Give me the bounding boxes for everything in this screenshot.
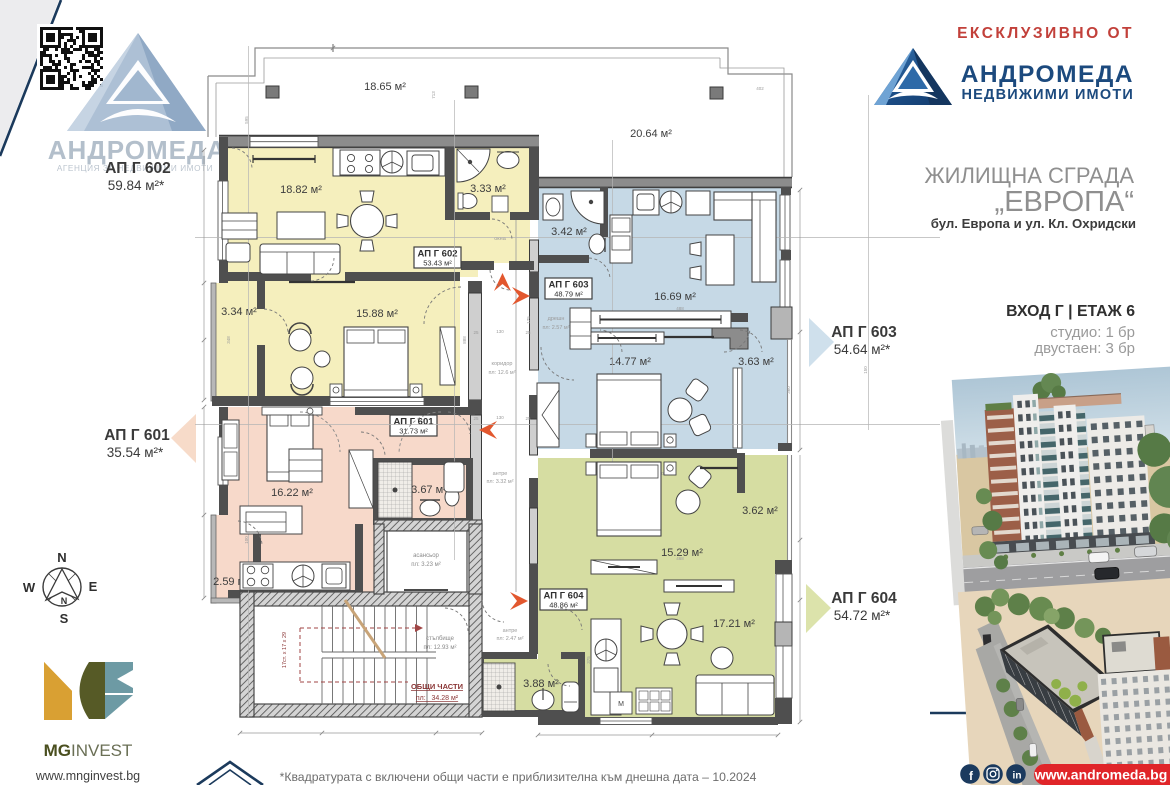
svg-text:3.63 м²: 3.63 м² xyxy=(738,356,774,368)
svg-text:*Квадратурата с включени общи: *Квадратурата с включени общи части е пр… xyxy=(280,770,757,784)
svg-text:пл: 2.57 м²: пл: 2.57 м² xyxy=(542,325,569,331)
svg-text:ВХОД Г | ЕТАЖ 6: ВХОД Г | ЕТАЖ 6 xyxy=(1006,303,1135,320)
svg-text:130: 130 xyxy=(496,415,504,420)
svg-text:дрешн: дрешн xyxy=(548,316,565,322)
svg-text:175: 175 xyxy=(526,316,531,324)
svg-text:130: 130 xyxy=(496,329,504,334)
svg-text:713: 713 xyxy=(431,91,436,99)
svg-text:54.72 м²*: 54.72 м²* xyxy=(834,608,891,623)
svg-text:18.65 м²: 18.65 м² xyxy=(364,81,406,93)
svg-text:25: 25 xyxy=(473,330,479,335)
svg-text:ЕКСКЛУЗИВНО ОТ: ЕКСКЛУЗИВНО ОТ xyxy=(957,25,1134,42)
svg-text:„ЕВРОПА“: „ЕВРОПА“ xyxy=(995,186,1134,218)
svg-text:100: 100 xyxy=(244,536,249,544)
svg-text:ЖИЛИЩНА СГРАДА: ЖИЛИЩНА СГРАДА xyxy=(924,163,1134,188)
svg-text:48.79 м²: 48.79 м² xyxy=(554,290,583,299)
svg-text:16.69 м²: 16.69 м² xyxy=(654,291,696,303)
svg-text:студио: 1 бр: студио: 1 бр xyxy=(1050,324,1135,341)
svg-text:АП Г 601: АП Г 601 xyxy=(104,427,170,444)
svg-text:бул. Европа и ул. Кл. Охридски: бул. Европа и ул. Кл. Охридски xyxy=(931,216,1136,231)
svg-text:пл: 3.23 м²: пл: 3.23 м² xyxy=(411,562,441,568)
svg-text:54.64 м²*: 54.64 м²* xyxy=(834,342,891,357)
svg-text:14.77 м²: 14.77 м² xyxy=(609,356,651,368)
svg-text:150: 150 xyxy=(863,366,868,374)
svg-text:3.67 м²: 3.67 м² xyxy=(411,484,447,496)
svg-text:3.88 м²: 3.88 м² xyxy=(523,678,559,690)
svg-text:www.mnginvest.bg: www.mnginvest.bg xyxy=(35,769,140,783)
svg-text:АП Г 603: АП Г 603 xyxy=(831,324,897,341)
svg-text:375: 375 xyxy=(586,656,591,664)
svg-text:S: S xyxy=(60,611,69,626)
svg-text:стълбище: стълбище xyxy=(426,636,455,642)
svg-text:пл: 34.28 м²: пл: 34.28 м² xyxy=(416,695,459,702)
svg-text:АНДРОМЕДА: АНДРОМЕДА xyxy=(961,61,1134,88)
svg-text:W: W xyxy=(23,580,36,595)
svg-text:пл: 2.47 м²: пл: 2.47 м² xyxy=(496,636,523,642)
svg-text:888: 888 xyxy=(462,336,467,344)
svg-text:488: 488 xyxy=(676,306,684,311)
svg-text:антре: антре xyxy=(503,628,518,634)
svg-text:25: 25 xyxy=(473,416,479,421)
svg-text:3.42 м²: 3.42 м² xyxy=(551,226,587,238)
svg-text:М: М xyxy=(618,701,624,708)
svg-text:18.82 м²: 18.82 м² xyxy=(280,184,322,196)
svg-text:3.33 м²: 3.33 м² xyxy=(470,183,506,195)
svg-text:ОБЩИ ЧАСТИ: ОБЩИ ЧАСТИ xyxy=(411,682,463,691)
svg-text:E: E xyxy=(89,579,98,594)
svg-text:in: in xyxy=(1013,771,1022,782)
svg-text:348: 348 xyxy=(226,336,231,344)
svg-text:53.43 м²: 53.43 м² xyxy=(423,259,452,268)
svg-text:468: 468 xyxy=(676,556,684,561)
svg-text:www.andromeda.bg: www.andromeda.bg xyxy=(1034,767,1168,783)
svg-text:пл: 12.93 м²: пл: 12.93 м² xyxy=(424,645,457,651)
svg-text:360: 360 xyxy=(786,386,791,394)
svg-text:16.22 м²: 16.22 м² xyxy=(271,487,313,499)
svg-text:MGINVEST: MGINVEST xyxy=(44,741,133,760)
svg-text:20.64 м²: 20.64 м² xyxy=(630,128,672,140)
svg-text:25: 25 xyxy=(525,416,531,421)
svg-text:асансьор: асансьор xyxy=(413,553,439,559)
svg-text:15.88 м²: 15.88 м² xyxy=(356,308,398,320)
svg-text:48.86 м²: 48.86 м² xyxy=(549,601,578,610)
svg-text:N: N xyxy=(57,550,66,565)
svg-text:25: 25 xyxy=(525,330,531,335)
svg-text:402: 402 xyxy=(756,86,764,91)
svg-text:17.21 м²: 17.21 м² xyxy=(713,618,755,630)
svg-text:пл: 12.6 м²: пл: 12.6 м² xyxy=(488,370,515,376)
svg-text:окна: окна xyxy=(494,236,507,242)
svg-text:35.54 м²*: 35.54 м²* xyxy=(107,445,164,460)
svg-text:3.34 м²: 3.34 м² xyxy=(221,306,257,318)
svg-text:антре: антре xyxy=(493,471,508,477)
svg-text:двустаен: 3 бр: двустаен: 3 бр xyxy=(1034,340,1135,357)
svg-text:коридор: коридор xyxy=(492,361,513,367)
svg-text:17ст. х 17 х 29: 17ст. х 17 х 29 xyxy=(282,632,288,668)
svg-text:N: N xyxy=(61,596,68,606)
svg-text:59.84 м²*: 59.84 м²* xyxy=(108,178,165,193)
svg-text:АП Г 602: АП Г 602 xyxy=(105,160,170,177)
svg-text:АП Г 604: АП Г 604 xyxy=(831,590,897,607)
svg-text:НЕДВИЖИМИ ИМОТИ: НЕДВИЖИМИ ИМОТИ xyxy=(962,87,1134,103)
svg-text:пл: 3.32 м²: пл: 3.32 м² xyxy=(486,479,513,485)
svg-text:595: 595 xyxy=(244,116,249,124)
svg-text:3.62 м²: 3.62 м² xyxy=(742,505,778,517)
